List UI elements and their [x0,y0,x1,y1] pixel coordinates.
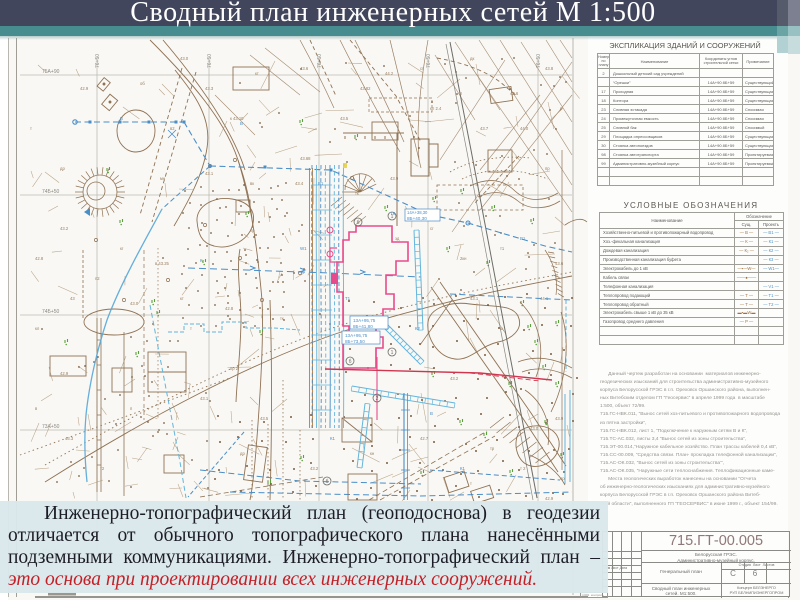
svg-text:пр: пр [545,166,550,171]
svg-text:сг: сг [430,226,434,231]
svg-text:43.7: 43.7 [480,126,489,131]
svg-text:W1: W1 [300,246,307,251]
svg-text:8Б+40,30: 8Б+40,30 [407,216,427,221]
svg-text:44.0: 44.0 [520,126,529,131]
svg-text:т 2: т 2 [520,466,526,471]
svg-text:К1: К1 [460,466,466,471]
svg-text:43.4: 43.4 [295,181,304,186]
svg-text:п: п [460,91,462,96]
svg-text:кт: кт [180,296,184,301]
svg-text:44.1: 44.1 [540,296,549,301]
svg-text:в: в [35,406,38,411]
svg-text:8Б+41,80: 8Б+41,80 [353,324,373,329]
svg-text:кн: кн [370,451,375,456]
svg-text:б: б [349,359,352,365]
svg-text:К: К [200,258,203,263]
svg-text:пр: пр [250,228,255,233]
svg-text:т1: т1 [500,246,505,251]
svg-text:кл: кл [35,326,40,331]
svg-text:76+50: 76+50 [207,54,213,68]
svg-text:13А+95,75: 13А+95,75 [353,318,376,323]
svg-text:мн: мн [160,176,166,181]
svg-text:43.6: 43.6 [300,66,309,71]
svg-text:др: др [240,451,245,456]
svg-text:В: В [240,121,243,126]
svg-text:74Б+50: 74Б+50 [42,309,60,315]
svg-text:В: В [120,116,123,121]
svg-text:42.8: 42.8 [225,306,234,311]
svg-text:1: 1 [391,350,394,356]
svg-text:42.7: 42.7 [420,436,429,441]
svg-text:др: др [60,166,65,171]
svg-text:тк: тк [280,316,284,321]
svg-text:б: б [357,220,360,226]
svg-text:В1: В1 [318,181,324,186]
svg-text:43.0: 43.0 [180,56,189,61]
svg-text:44.2: 44.2 [385,71,394,76]
svg-text:43.3: 43.3 [65,436,74,441]
svg-text:43.2: 43.2 [310,466,319,471]
svg-text:пр: пр [560,476,565,481]
svg-text:в2: в2 [170,126,175,131]
svg-text:43.2: 43.2 [450,376,459,381]
svg-text:ТК: ТК [390,211,396,216]
svg-text:б: б [326,479,329,485]
svg-text:42.9: 42.9 [60,371,69,376]
svg-text:кл 2.4: кл 2.4 [430,106,442,111]
svg-text:т2: т2 [100,466,105,471]
svg-text:42.6: 42.6 [510,91,519,96]
svg-text:43.9: 43.9 [390,176,399,181]
svg-text:43.1: 43.1 [470,296,479,301]
svg-text:щ: щ [500,326,504,331]
svg-text:43.5: 43.5 [260,416,269,421]
svg-text:43.68: 43.68 [300,156,311,161]
svg-text:т: т [470,481,472,486]
svg-text:43.5: 43.5 [340,116,349,121]
svg-text:42.9: 42.9 [80,86,89,91]
svg-text:8Б+73,50: 8Б+73,50 [345,339,365,344]
svg-text:кг: кг [120,246,124,251]
svg-text:73А+50: 73А+50 [42,424,60,430]
svg-text:дк: дк [470,56,474,61]
svg-text:13А+95,75: 13А+95,75 [345,333,368,338]
svg-text:Т1: Т1 [345,296,351,301]
svg-text:2кн: 2кн [460,256,467,261]
svg-text:43.2: 43.2 [60,226,69,231]
svg-text:14А+38,30: 14А+38,30 [407,210,428,215]
svg-text:43.3: 43.3 [205,86,214,91]
svg-text:2: 2 [376,396,379,402]
svg-text:75А+90: 75А+90 [42,69,60,75]
svg-text:К2: К2 [415,326,421,331]
svg-text:43.1: 43.1 [200,396,209,401]
svg-text:43: 43 [70,296,75,301]
svg-text:43.0: 43.0 [130,301,139,306]
svg-text:43.0: 43.0 [530,426,539,431]
svg-text:В: В [430,411,433,416]
svg-text:пр 2: пр 2 [230,366,239,371]
svg-text:т: т [190,326,192,331]
svg-text:42.8: 42.8 [35,256,44,261]
svg-text:в 43.25: в 43.25 [155,261,170,266]
svg-text:об: об [140,81,145,86]
svg-text:43.6: 43.6 [555,261,564,266]
svg-text:вк: вк [250,181,254,186]
svg-text:76+50: 76+50 [95,54,101,68]
svg-text:сг: сг [420,66,424,71]
svg-text:тр: тр [490,446,495,451]
svg-text:43.1: 43.1 [205,171,214,176]
svg-text:т: т [30,126,32,131]
svg-text:зд: зд [395,236,400,241]
svg-text:В1: В1 [520,236,526,241]
svg-text:К1: К1 [330,436,336,441]
svg-text:76+50: 76+50 [536,54,542,68]
svg-text:74Б+50: 74Б+50 [42,189,60,195]
svg-text:43.9: 43.9 [555,416,564,421]
svg-text:43.82: 43.82 [360,86,371,91]
svg-text:43.8: 43.8 [545,66,554,71]
svg-text:тк: тк [355,191,359,196]
svg-text:76+50: 76+50 [426,54,432,68]
svg-text:п: п [130,406,132,411]
svg-text:кт: кт [255,71,259,76]
svg-text:п2: п2 [95,276,100,281]
